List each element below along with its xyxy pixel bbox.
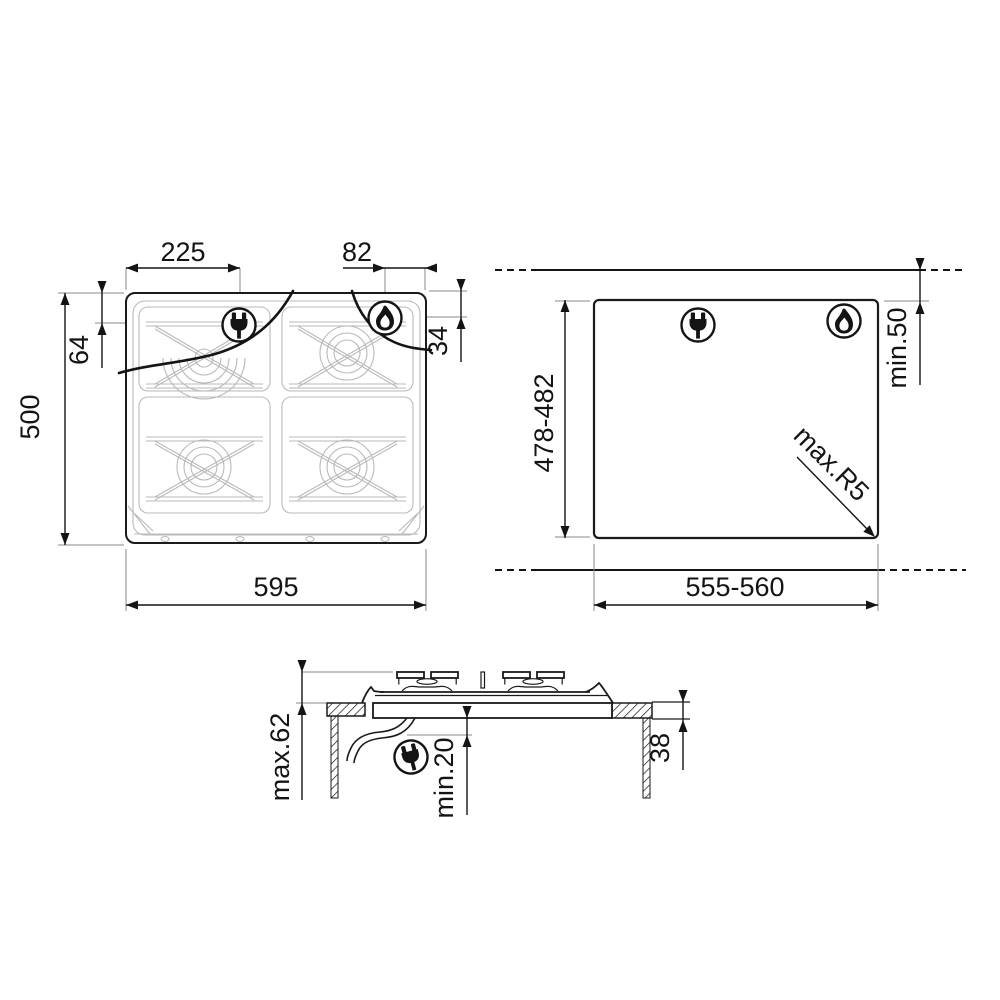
dim-width: 595	[126, 572, 426, 610]
worktop-section-left	[327, 703, 365, 716]
dim-label-225: 225	[160, 237, 205, 267]
dim-label-478-482: 478-482	[529, 373, 559, 472]
hob-top-view: 225 82 64 34 500	[15, 237, 467, 611]
dim-plug-offset-y: 64	[64, 281, 107, 368]
installation-drawing-page: 225 82 64 34 500	[0, 0, 1000, 1000]
flame-icon	[369, 302, 402, 335]
installation-drawing: 225 82 64 34 500	[0, 0, 1000, 1000]
dim-label-min50: min.50	[882, 307, 912, 388]
dim-rear-clearance: min.50	[882, 258, 925, 389]
worktop-cutout-view: 478-482 555-560 min.50 max.R5	[495, 258, 966, 611]
worktop-section-right	[612, 703, 652, 718]
dim-depth: 500	[15, 293, 70, 545]
dim-label-595: 595	[253, 572, 298, 602]
dim-plug-offset-x: 225	[126, 237, 240, 273]
plug-icon	[682, 309, 715, 342]
dim-cutout-width: 555-560	[594, 572, 878, 610]
hob-profile	[362, 672, 613, 703]
dim-label-max62: max.62	[265, 713, 295, 802]
dim-clearance-below: min.20	[429, 706, 472, 819]
dim-label-500: 500	[15, 394, 45, 439]
side-section-view: max.62 min.20 38	[265, 660, 690, 819]
cabinet-wall-left	[331, 716, 338, 798]
hob-tub-section	[373, 703, 612, 718]
dim-cutout-depth: 478-482	[529, 300, 570, 538]
dim-label-min20: min.20	[429, 737, 459, 818]
dim-label-38: 38	[645, 733, 675, 763]
plug-icon	[223, 309, 256, 342]
dim-flame-offset-x: 82	[342, 237, 437, 273]
dim-height-above-worktop: max.62	[265, 660, 307, 801]
dim-label-82: 82	[342, 237, 372, 267]
dim-label-555-560: 555-560	[685, 572, 784, 602]
dim-label-64: 64	[64, 335, 94, 365]
plug-icon	[391, 737, 431, 777]
dim-label-34: 34	[423, 326, 453, 356]
flame-icon	[828, 305, 861, 338]
